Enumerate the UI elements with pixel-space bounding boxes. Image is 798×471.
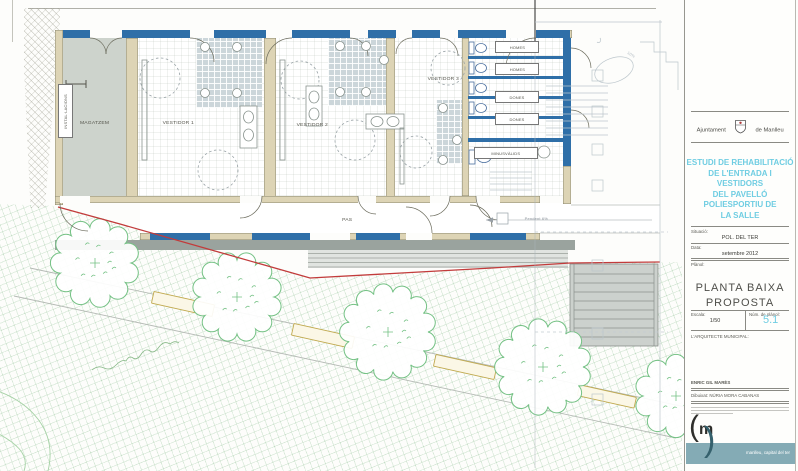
org-name-right: de Manlleu	[756, 126, 784, 132]
architect-label: L'ARQUITECTE MUNICIPAL:	[691, 334, 749, 339]
project-title: ESTUDI DE REHABILITACIÓ DE L'ENTRADA I V…	[685, 158, 795, 221]
manlleu-crest-icon	[734, 119, 747, 139]
org-name-left: Ajuntament	[696, 126, 725, 132]
data-value: setembre 2012	[703, 250, 778, 256]
title-block: Ajuntament de Manlleu ESTUDI DE REHABILI…	[684, 0, 796, 471]
escala-value: 1/50	[695, 317, 736, 323]
org-header: Ajuntament de Manlleu	[685, 118, 795, 140]
label-minusvalids: MINUSVÀLIDS	[474, 147, 538, 159]
sheet-frame-left	[12, 0, 13, 42]
plan-name: PLANTA BAIXA PROPOSTA	[685, 281, 795, 311]
sheet-frame-top	[28, 8, 656, 9]
shower-area-3	[436, 100, 462, 164]
label-homes-2: HOMES	[495, 63, 539, 75]
label-vestidor2: VESTIDOR 2	[280, 118, 344, 130]
architect-name: ENRIC GIL MARÈS	[691, 380, 730, 385]
label-pas: PAS	[330, 213, 364, 225]
label-vestidor1: VESTIDOR 1	[146, 116, 210, 128]
label-dones-1: DONES	[495, 91, 539, 103]
num-planol-value: 5.1	[763, 314, 778, 326]
drawing-sheet: INSTAL·LACIONS MAGATZEM VESTIDOR 1 VESTI…	[0, 0, 798, 471]
paving-hatch	[0, 200, 682, 471]
shower-area-2	[328, 38, 390, 106]
label-pendent-ramp: 10%	[615, 41, 647, 67]
corridor-pas-floor	[140, 203, 660, 233]
label-vestidor3: VESTIDOR 3	[414, 72, 472, 84]
tagline-text: manlleu, capital del ter	[732, 450, 790, 455]
planol-label: Plànol:	[691, 262, 704, 267]
situacio-value: POL. DEL TER	[703, 234, 778, 240]
label-dones-2: DONES	[495, 113, 539, 125]
label-magatzem: MAGATZEM	[64, 116, 126, 128]
label-homes-1: HOMES	[495, 41, 539, 53]
label-pendent: Pendent 6%	[508, 212, 564, 224]
manlleu-logo: ( m )	[687, 408, 737, 468]
drawn-by: Dibuixat: NÚRIA MORA CABANAS	[691, 393, 759, 398]
data-label: Data:	[691, 245, 702, 250]
label-installacions: INSTAL·LACIONS	[58, 84, 73, 138]
shower-area-1	[196, 38, 262, 108]
